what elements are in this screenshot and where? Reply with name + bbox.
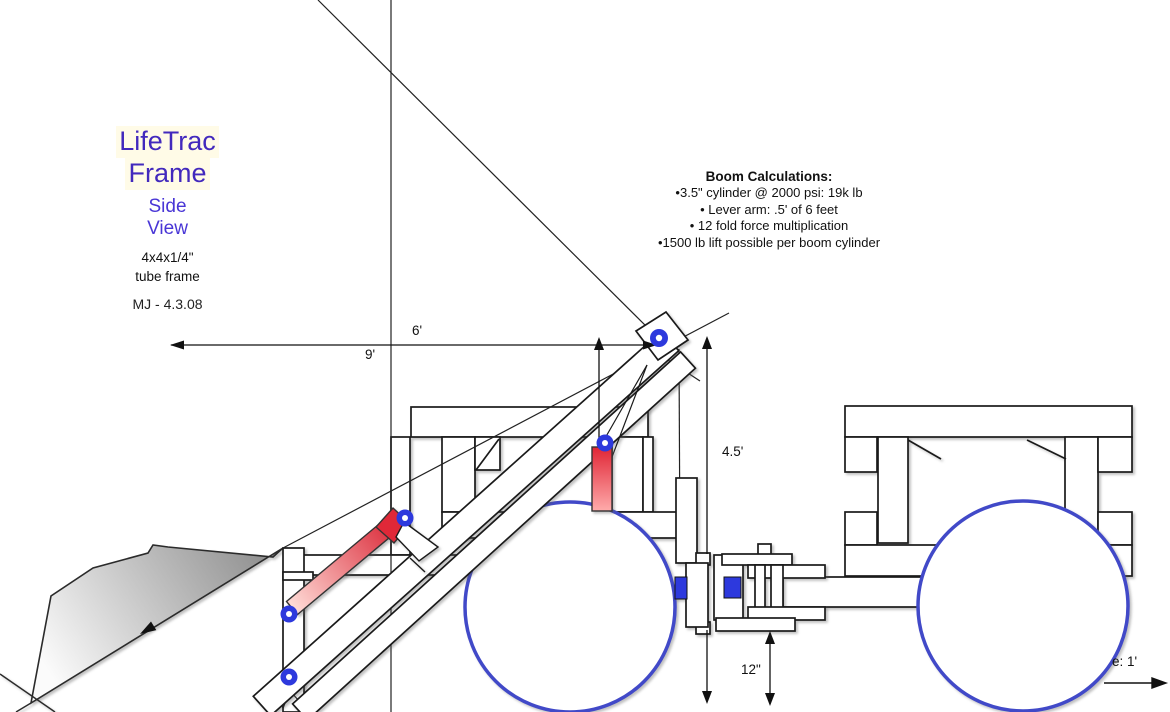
scale-arrow: [1104, 678, 1166, 688]
dim-label-4-5ft: 4.5': [722, 444, 743, 459]
drawing-title-line2: Frame: [125, 158, 209, 190]
dim-label-12in: 12": [741, 662, 761, 677]
tube-spec-line1: 4x4x1/4": [141, 250, 193, 265]
lifetrac-frame-drawing: LifeTrac Frame Side View 4x4x1/4" tube f…: [0, 0, 1170, 712]
boom-calc-item: •1500 lb lift possible per boom cylinder: [538, 235, 1000, 251]
bucket: [0, 545, 283, 712]
boom-calc-item: •3.5" cylinder @ 2000 psi: 19k lb: [538, 185, 1000, 201]
author-date: MJ - 4.3.08: [60, 296, 275, 313]
drawbar: [783, 577, 925, 607]
dim-label-6ft: 6': [412, 323, 422, 338]
boom-calculations: Boom Calculations: •3.5" cylinder @ 2000…: [538, 169, 1000, 251]
boom-tip-pivot: [650, 329, 668, 347]
dim-label-9ft: 9': [365, 347, 375, 362]
frame-diagram-canvas: [0, 0, 1170, 712]
hitch-pin-right: [724, 577, 741, 598]
view-label-line2: View: [147, 218, 188, 239]
boom-base-pivot: [281, 669, 298, 686]
view-label-line1: Side: [148, 196, 186, 217]
drawing-title-line1: LifeTrac: [116, 126, 219, 158]
tube-spec-line2: tube frame: [135, 269, 200, 284]
boom-calculations-heading: Boom Calculations:: [538, 169, 1000, 185]
scale-label: e: 1': [1112, 654, 1137, 669]
bucket-cylinder-pivot: [597, 435, 614, 452]
boom-calc-item: • Lever arm: .5' of 6 feet: [538, 202, 1000, 218]
title-block: LifeTrac Frame Side View 4x4x1/4" tube f…: [60, 126, 275, 313]
rear-wheel: [918, 501, 1128, 711]
lift-cylinder-base-pivot: [281, 606, 298, 623]
hitch-pin-left: [675, 577, 687, 599]
articulation-coupler: [675, 478, 825, 634]
lift-cylinder-top-pivot: [397, 510, 414, 527]
boom-calc-item: • 12 fold force multiplication: [538, 218, 1000, 234]
bucket-cylinder: [592, 447, 612, 511]
